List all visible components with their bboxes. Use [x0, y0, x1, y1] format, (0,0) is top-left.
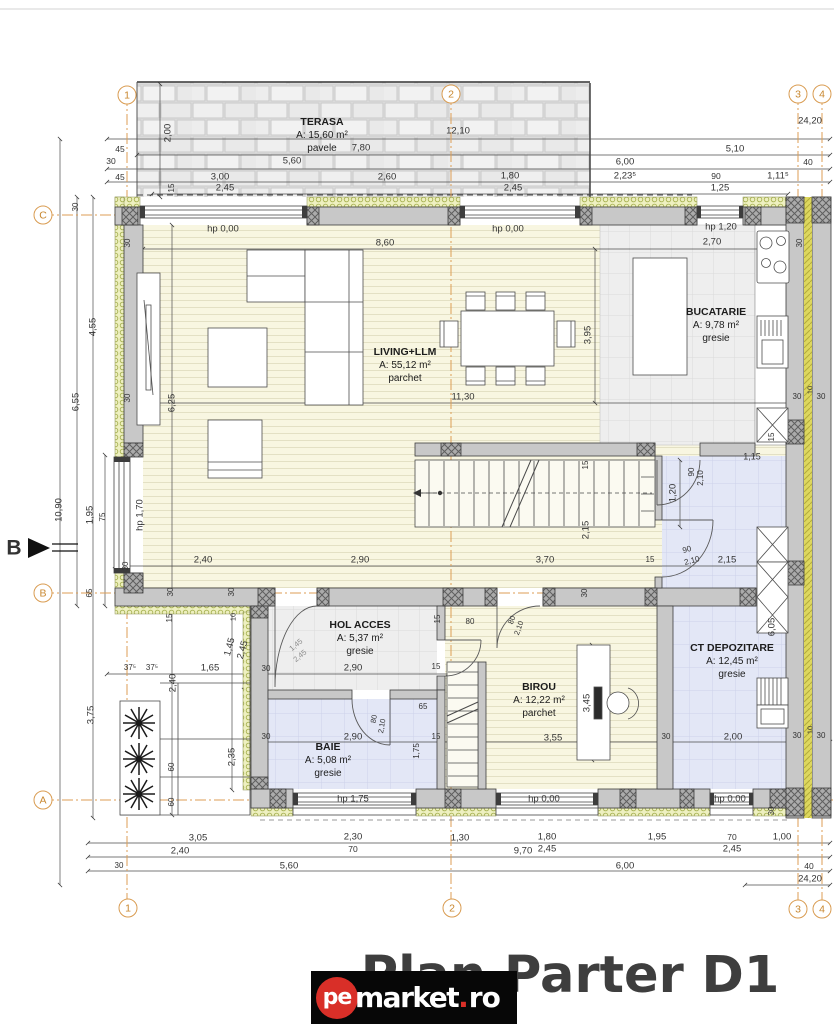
- planter-and-steps: [120, 606, 250, 815]
- plan-drawing: [0, 0, 834, 1024]
- watermark-tld: ro: [469, 981, 500, 1014]
- watermark-dot: .: [458, 981, 469, 1014]
- terrace-paving: [137, 82, 692, 197]
- floor-plan: 12,1024,202,007,805,1045305,606,0040453,…: [0, 0, 834, 1024]
- watermark-pe-badge: pe: [316, 977, 358, 1019]
- watermark-logo: pe market . ro: [311, 971, 517, 1024]
- watermark-market-text: market: [355, 981, 458, 1014]
- watermark-pe-text: pe: [323, 985, 352, 1010]
- section-marker-icon: [28, 538, 78, 558]
- flower-icon: [123, 707, 155, 810]
